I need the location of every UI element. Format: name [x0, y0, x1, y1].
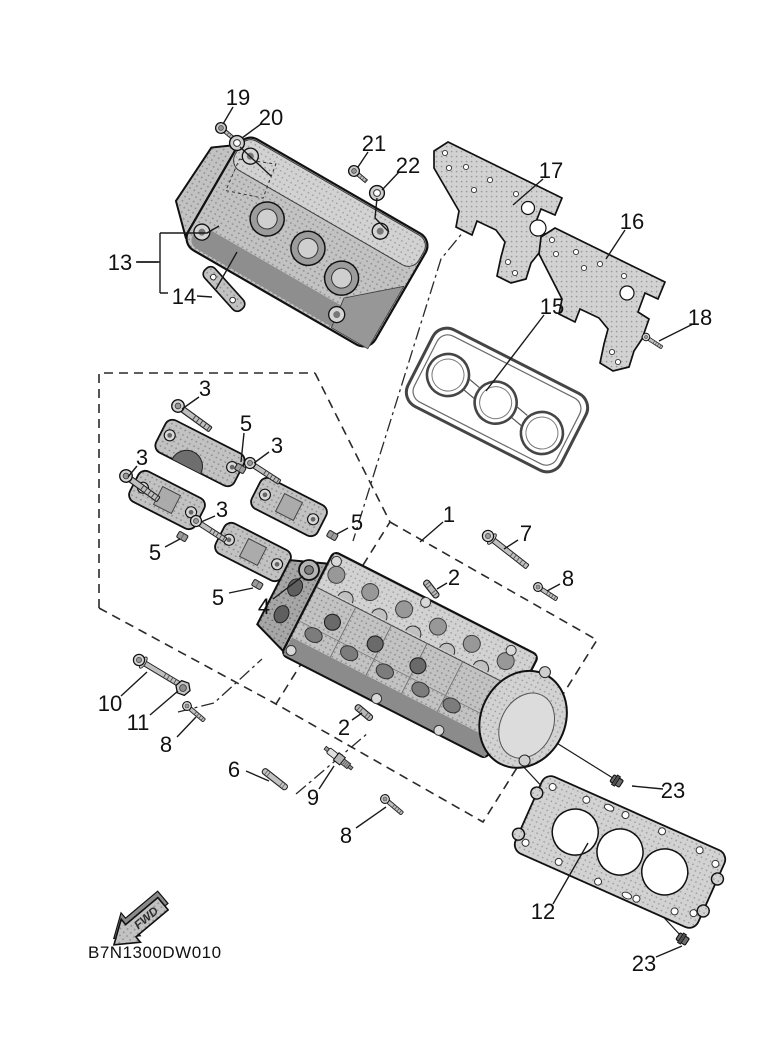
- part-8-bolt: [532, 581, 559, 603]
- callout-2: 2: [448, 565, 460, 590]
- cam-cap: [212, 520, 293, 584]
- callout-7: 7: [520, 521, 532, 546]
- callout-leader-15: [486, 315, 544, 391]
- callout-6: 6: [228, 757, 240, 782]
- callout-leader-16: [606, 230, 625, 259]
- callout-leader-3: [254, 452, 269, 463]
- callout-23: 23: [661, 778, 685, 803]
- callout-leader-11: [150, 691, 178, 715]
- callout-5: 5: [351, 510, 363, 535]
- cam-cap: [248, 475, 329, 539]
- exploded-view-diagram: 1920212217161815131435333555417281011826…: [0, 0, 770, 1064]
- part-15-cover-gasket: [401, 323, 593, 478]
- callout-leader-23: [632, 786, 663, 789]
- callout-leader-3: [201, 516, 215, 522]
- callout-17: 17: [539, 158, 563, 183]
- callout-leader-23: [656, 946, 682, 957]
- callout-leader-5: [337, 528, 348, 534]
- callout-2: 2: [338, 715, 350, 740]
- callout-8: 8: [340, 823, 352, 848]
- callout-3: 3: [136, 445, 148, 470]
- callout-12: 12: [531, 899, 555, 924]
- callout-leader-10: [121, 672, 147, 696]
- callout-leader-5: [229, 588, 253, 593]
- callout-leader-7: [504, 540, 518, 549]
- callout-23: 23: [632, 951, 656, 976]
- callout-leader-1: [420, 522, 443, 542]
- callout-22: 22: [396, 153, 420, 178]
- callout-18: 18: [688, 305, 712, 330]
- callout-1: 1: [443, 502, 455, 527]
- callout-leader-2: [352, 713, 362, 720]
- callout-8: 8: [562, 566, 574, 591]
- part-5-dowel: [251, 579, 263, 590]
- callout-5: 5: [149, 540, 161, 565]
- part-8-bolt: [379, 793, 405, 817]
- callout-21: 21: [362, 131, 386, 156]
- callout-leader-8: [547, 584, 560, 591]
- part-5-dowel: [326, 530, 338, 541]
- part-23-dowel: [609, 773, 624, 788]
- part-2-stud: [354, 704, 374, 722]
- callout-14: 14: [172, 284, 196, 309]
- part-18-bolt: [641, 332, 664, 351]
- callout-5: 5: [240, 411, 252, 436]
- callout-leader-9: [319, 766, 334, 789]
- cam-cap: [153, 417, 248, 489]
- callout-leader-8: [356, 807, 386, 828]
- callout-15: 15: [540, 294, 564, 319]
- part-23-dowel: [675, 931, 690, 946]
- diagram-code: B7N1300DW010: [88, 943, 222, 962]
- callout-leader-8: [177, 717, 196, 737]
- part-9-spark-plug: [322, 744, 354, 772]
- callout-3: 3: [271, 433, 283, 458]
- callout-16: 16: [620, 209, 644, 234]
- callout-3: 3: [199, 376, 211, 401]
- part-13-head-cover: [159, 120, 433, 352]
- callout-leader-2: [437, 583, 447, 589]
- callout-11: 11: [127, 710, 150, 735]
- callout-leader-3: [182, 397, 199, 409]
- part-8-bolt: [181, 700, 207, 724]
- callout-leader-14: [197, 296, 212, 297]
- parts-diagram-page: 1920212217161815131435333555417281011826…: [0, 0, 770, 1064]
- callout-leader-5: [165, 539, 180, 547]
- callout-19: 19: [226, 85, 250, 110]
- callout-8: 8: [160, 732, 172, 757]
- callout-9: 9: [307, 785, 319, 810]
- callout-5: 5: [212, 585, 224, 610]
- callout-20: 20: [259, 105, 283, 130]
- callout-4: 4: [258, 594, 270, 619]
- callout-13: 13: [108, 250, 132, 275]
- callout-10: 10: [98, 691, 122, 716]
- callout-3: 3: [216, 497, 228, 522]
